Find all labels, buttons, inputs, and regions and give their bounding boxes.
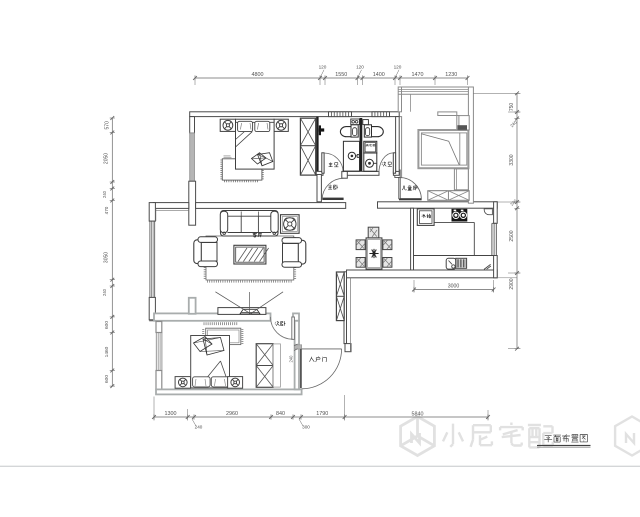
- svg-text:1400: 1400: [373, 72, 385, 78]
- svg-text:750: 750: [509, 103, 515, 112]
- svg-text:1470: 1470: [412, 72, 424, 78]
- svg-text:2500: 2500: [509, 230, 515, 241]
- svg-text:2900: 2900: [509, 278, 515, 289]
- svg-text:3000: 3000: [448, 283, 460, 289]
- svg-text:5840: 5840: [412, 412, 424, 418]
- svg-text:3300: 3300: [509, 154, 515, 165]
- svg-text:240: 240: [102, 190, 107, 198]
- svg-text:600: 600: [104, 375, 110, 383]
- svg-text:2050: 2050: [104, 153, 110, 164]
- svg-text:300: 300: [302, 425, 310, 430]
- svg-text:1230: 1230: [445, 72, 457, 78]
- svg-text:600: 600: [104, 321, 110, 329]
- svg-text:3050: 3050: [104, 252, 110, 263]
- svg-text:470: 470: [104, 206, 109, 214]
- svg-text:4800: 4800: [252, 72, 264, 78]
- svg-text:2960: 2960: [226, 411, 238, 417]
- svg-text:240: 240: [102, 288, 107, 296]
- svg-text:1300: 1300: [165, 411, 177, 417]
- svg-text:120: 120: [319, 64, 327, 69]
- svg-text:1550: 1550: [335, 72, 347, 78]
- svg-text:840: 840: [276, 411, 285, 417]
- svg-text:120: 120: [394, 64, 402, 69]
- svg-text:570: 570: [104, 121, 110, 130]
- svg-text:1460: 1460: [104, 346, 110, 357]
- svg-text:240: 240: [195, 425, 203, 430]
- svg-text:120: 120: [356, 64, 364, 69]
- svg-text:240: 240: [288, 355, 293, 363]
- svg-text:1790: 1790: [316, 411, 328, 417]
